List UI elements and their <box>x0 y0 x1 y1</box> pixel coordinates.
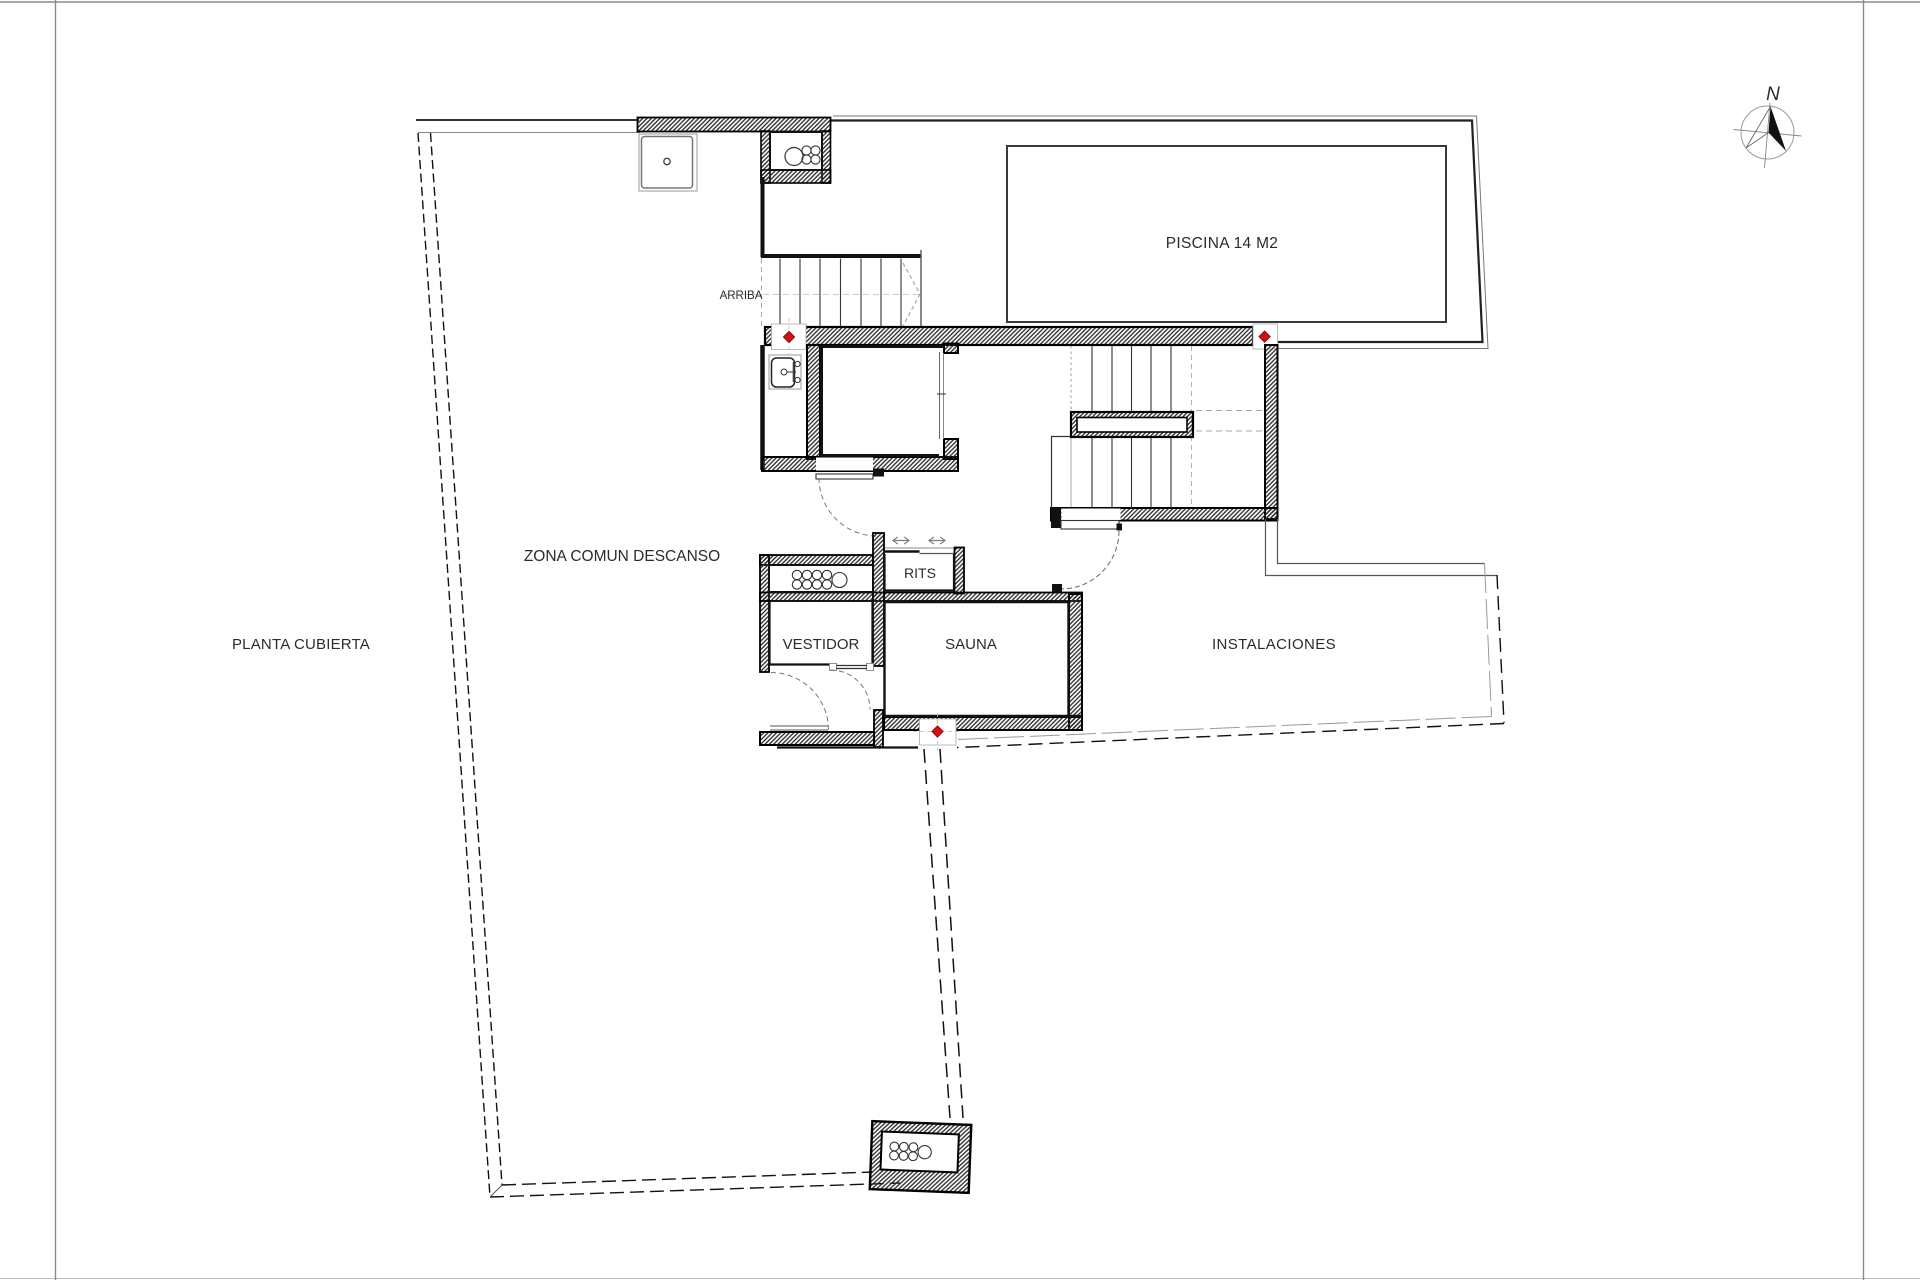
svg-text:RITS: RITS <box>904 565 936 581</box>
svg-text:ARRIBA: ARRIBA <box>720 290 763 302</box>
svg-text:PLANTA CUBIERTA: PLANTA CUBIERTA <box>232 636 370 653</box>
svg-text:INSTALACIONES: INSTALACIONES <box>1212 636 1336 653</box>
svg-text:ZONA COMUN DESCANSO: ZONA COMUN DESCANSO <box>524 548 720 565</box>
svg-text:SAUNA: SAUNA <box>945 636 997 653</box>
svg-text:PISCINA 14 M2: PISCINA 14 M2 <box>1166 235 1278 252</box>
svg-text:N: N <box>1766 84 1780 105</box>
svg-text:VESTIDOR: VESTIDOR <box>783 636 860 653</box>
